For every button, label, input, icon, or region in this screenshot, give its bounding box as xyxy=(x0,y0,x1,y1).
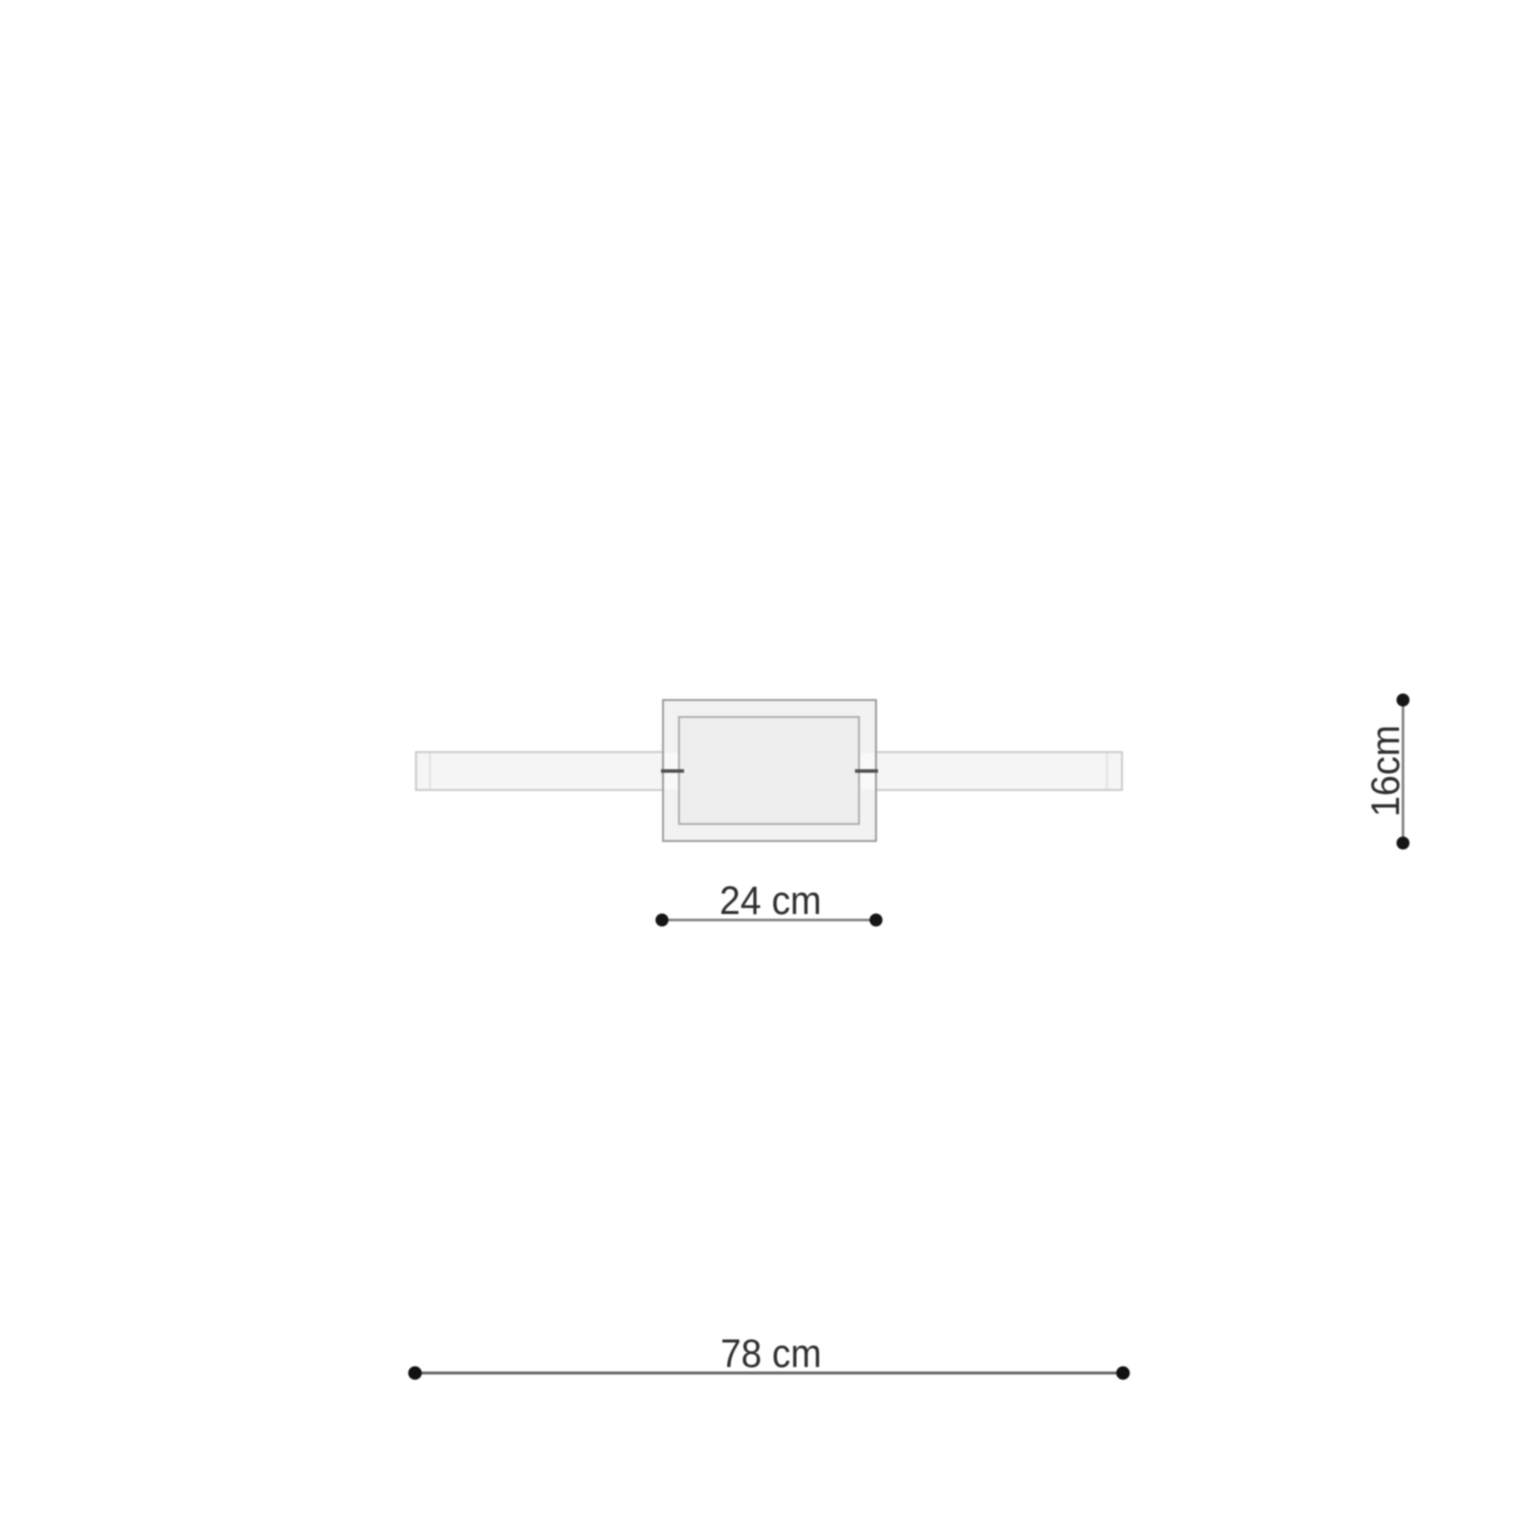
svg-text:24 cm: 24 cm xyxy=(720,879,822,923)
svg-text:16cm: 16cm xyxy=(1364,725,1408,817)
svg-text:78 cm: 78 cm xyxy=(721,1332,822,1376)
